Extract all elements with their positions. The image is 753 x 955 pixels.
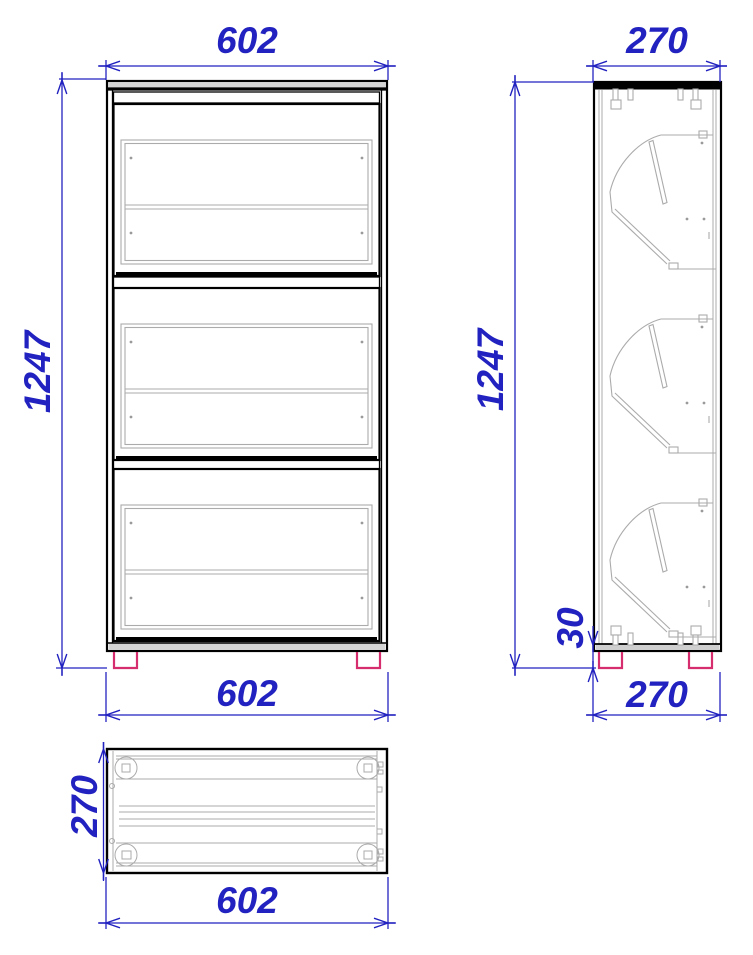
front-view: 602 1247 602: [17, 20, 396, 722]
dim-label-side-height: 1247: [470, 326, 511, 411]
front-cabinet-body: [107, 81, 387, 668]
side-view: 270 1247 30 270: [470, 20, 727, 722]
front-foot-left: [114, 652, 137, 668]
front-rail-bottom: [114, 460, 380, 469]
front-drawer-2: [114, 288, 380, 460]
drawing-svg: 602 1247 602: [0, 0, 753, 955]
dim-label-front-width-bottom: 602: [216, 673, 278, 714]
dim-label-side-foot-height: 30: [550, 607, 591, 649]
front-rail-middle: [114, 277, 380, 288]
top-cabinet-body: [107, 749, 387, 873]
side-foot-front: [599, 652, 622, 668]
side-cabinet-body: [594, 82, 721, 668]
side-foot-back: [689, 652, 712, 668]
dim-label-top-depth: 270: [64, 775, 105, 838]
dim-label-side-depth-bottom: 270: [625, 674, 688, 715]
front-drawer-3: [114, 469, 380, 641]
dim-label-front-width-top: 602: [216, 20, 278, 61]
dim-label-top-width: 602: [216, 880, 278, 921]
dim-label-side-depth-top: 270: [625, 20, 688, 61]
cad-drawing-canvas: 602 1247 602: [0, 0, 753, 955]
top-view: 270 602: [64, 742, 396, 929]
dim-label-front-height: 1247: [17, 328, 58, 413]
front-drawer-1: [114, 104, 380, 276]
front-rail-top: [114, 92, 380, 103]
front-foot-right: [357, 652, 380, 668]
